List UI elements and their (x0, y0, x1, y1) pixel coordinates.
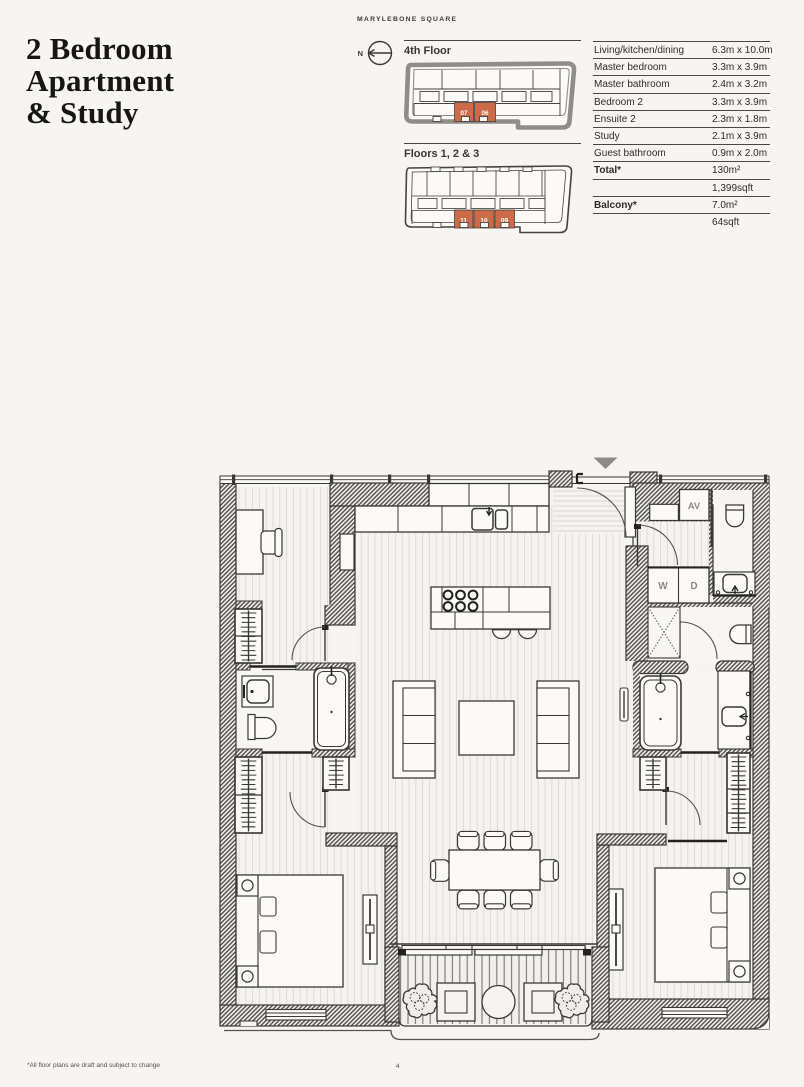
svg-text:W: W (658, 581, 668, 592)
svg-text:4th Floor: 4th Floor (404, 45, 452, 57)
svg-text:Floors 1, 2 & 3: Floors 1, 2 & 3 (404, 148, 479, 160)
svg-text:07: 07 (460, 110, 468, 117)
svg-text:D: D (690, 581, 697, 592)
svg-text:AV: AV (688, 501, 701, 512)
svg-text:N: N (358, 49, 363, 58)
svg-text:06: 06 (481, 110, 489, 117)
